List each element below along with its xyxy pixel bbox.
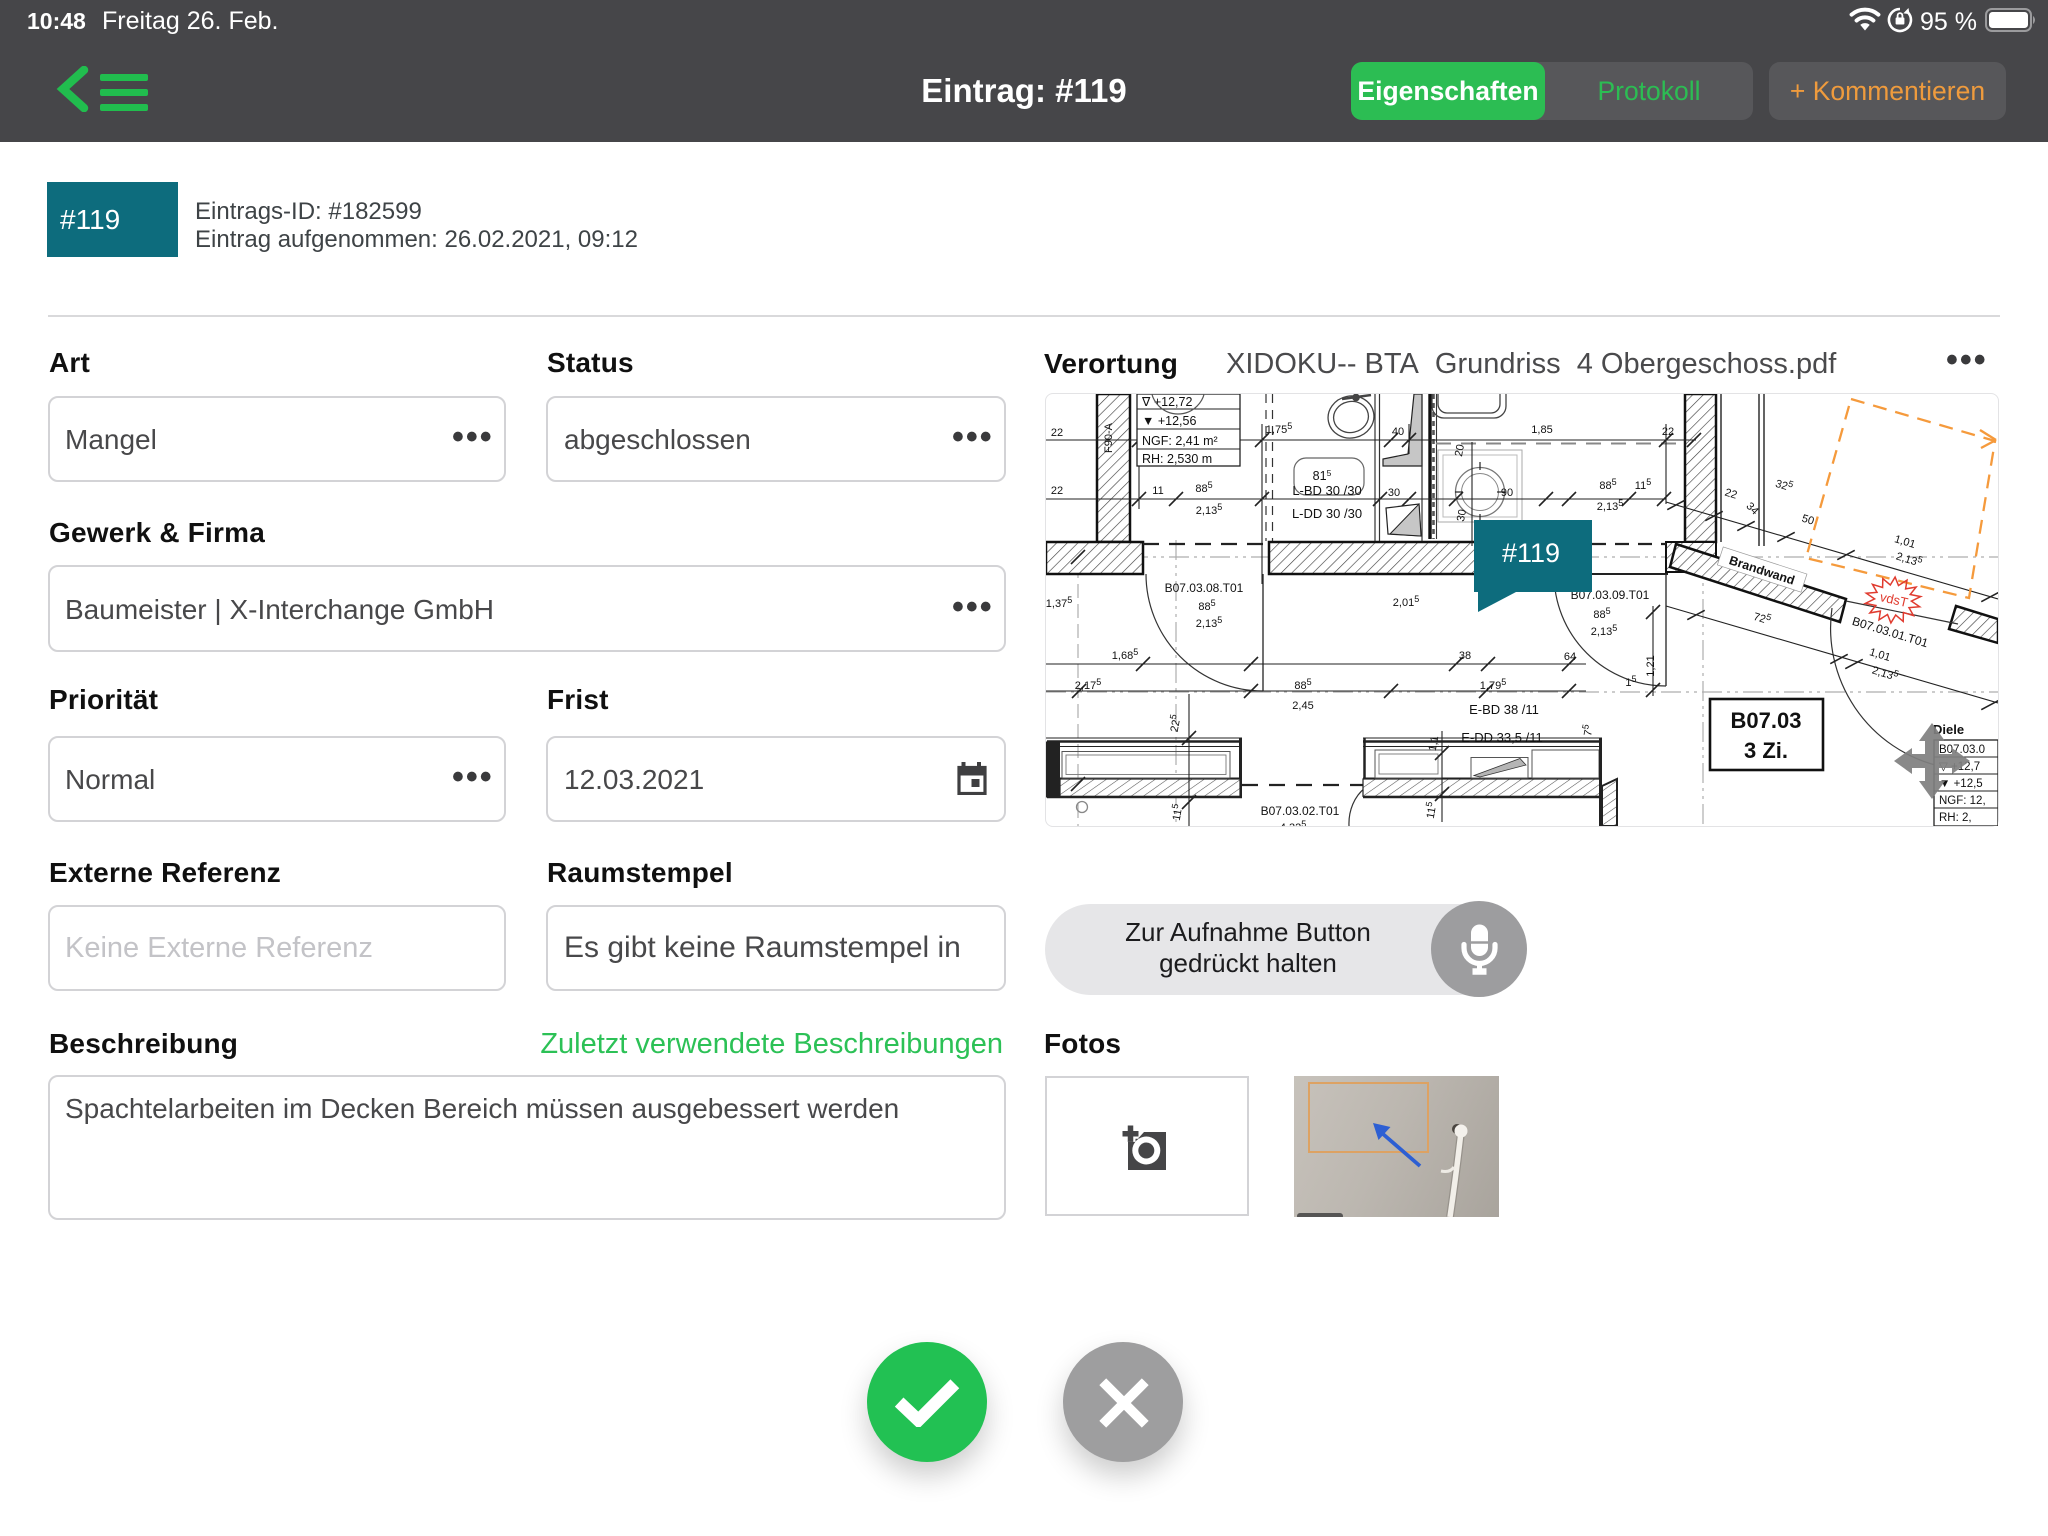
svg-text:11: 11 bbox=[1152, 485, 1163, 497]
svg-text:115: 115 bbox=[1168, 803, 1186, 822]
svg-text:1,375: 1,375 bbox=[1046, 595, 1072, 610]
svg-text:E-BD 38 /11: E-BD 38 /11 bbox=[1469, 702, 1539, 717]
svg-text:B07.03.08.T01: B07.03.08.T01 bbox=[1165, 581, 1244, 595]
svg-text:885: 885 bbox=[1198, 598, 1215, 613]
svg-text:NGF: 2,41 m²: NGF: 2,41 m² bbox=[1142, 434, 1218, 448]
svg-text:#119: #119 bbox=[1502, 538, 1560, 568]
svg-text:▼ +12,56: ▼ +12,56 bbox=[1142, 414, 1196, 428]
svg-text:3 Zi.: 3 Zi. bbox=[1744, 738, 1788, 763]
svg-text:2,135: 2,135 bbox=[1196, 615, 1222, 630]
svg-text:RH: 2,530 m: RH: 2,530 m bbox=[1142, 452, 1212, 466]
svg-text:64: 64 bbox=[1564, 651, 1576, 663]
svg-text:815: 815 bbox=[1313, 468, 1332, 483]
svg-text:115: 115 bbox=[1422, 801, 1440, 820]
svg-text:RH: 2,: RH: 2, bbox=[1939, 812, 1972, 824]
svg-text:34: 34 bbox=[1744, 500, 1761, 517]
svg-text:50: 50 bbox=[1800, 513, 1815, 528]
svg-text:2,135: 2,135 bbox=[1591, 623, 1617, 638]
svg-text:885: 885 bbox=[1593, 606, 1610, 621]
svg-text:2,135: 2,135 bbox=[1894, 548, 1924, 570]
svg-text:2,135: 2,135 bbox=[1196, 502, 1222, 517]
svg-text:F90-A: F90-A bbox=[1103, 422, 1115, 453]
svg-text:4,325: 4,325 bbox=[1280, 819, 1306, 826]
svg-text:NGF: 12,: NGF: 12, bbox=[1939, 795, 1986, 807]
svg-text:B07.03.02.T01: B07.03.02.T01 bbox=[1261, 804, 1340, 818]
svg-text:1,1: 1,1 bbox=[1427, 735, 1441, 752]
svg-text:L-DD 30 /30: L-DD 30 /30 bbox=[1292, 506, 1362, 521]
svg-text:▼ +12,5: ▼ +12,5 bbox=[1939, 778, 1983, 790]
svg-text:30: 30 bbox=[1388, 487, 1400, 499]
svg-text:1,755: 1,755 bbox=[1266, 421, 1292, 436]
svg-text:115: 115 bbox=[1635, 477, 1651, 492]
svg-text:75: 75 bbox=[1579, 723, 1596, 737]
svg-text:1,01: 1,01 bbox=[1893, 533, 1917, 551]
svg-text:L-BD 30 /30: L-BD 30 /30 bbox=[1292, 483, 1361, 498]
svg-text:E-DD 33,5 /11: E-DD 33,5 /11 bbox=[1461, 730, 1542, 745]
svg-text:90: 90 bbox=[1501, 487, 1513, 499]
svg-text:1,795: 1,795 bbox=[1480, 677, 1506, 692]
svg-text:vdsT: vdsT bbox=[1879, 589, 1910, 610]
svg-text:2,135: 2,135 bbox=[1870, 662, 1900, 684]
svg-text:B07.03.01.T01: B07.03.01.T01 bbox=[1850, 614, 1930, 651]
svg-text:2,45: 2,45 bbox=[1292, 700, 1313, 712]
svg-text:∇ +12,72: ∇ +12,72 bbox=[1141, 395, 1192, 409]
svg-text:15: 15 bbox=[1625, 674, 1636, 689]
svg-text:38: 38 bbox=[1459, 650, 1471, 662]
svg-text:2,015: 2,015 bbox=[1393, 594, 1419, 609]
svg-text:2,175: 2,175 bbox=[1075, 677, 1101, 692]
svg-text:885: 885 bbox=[1195, 480, 1212, 495]
svg-text:2,135: 2,135 bbox=[1597, 498, 1623, 513]
svg-text:22: 22 bbox=[1051, 427, 1063, 439]
svg-text:325: 325 bbox=[1774, 475, 1795, 494]
svg-text:725: 725 bbox=[1752, 608, 1773, 627]
svg-text:885: 885 bbox=[1599, 477, 1616, 492]
svg-text:20: 20 bbox=[1453, 443, 1467, 457]
svg-text:885: 885 bbox=[1294, 677, 1311, 692]
svg-text:30: 30 bbox=[1455, 508, 1469, 522]
svg-text:1,85: 1,85 bbox=[1531, 424, 1552, 436]
svg-text:225: 225 bbox=[1166, 713, 1184, 733]
svg-text:22: 22 bbox=[1662, 426, 1674, 438]
svg-text:B07.03: B07.03 bbox=[1731, 708, 1802, 733]
svg-text:1,685: 1,685 bbox=[1112, 647, 1138, 662]
svg-text:22: 22 bbox=[1051, 485, 1063, 497]
svg-text:1,21: 1,21 bbox=[1645, 655, 1657, 676]
svg-text:22: 22 bbox=[1723, 487, 1738, 502]
svg-text:1,01: 1,01 bbox=[1868, 646, 1892, 664]
svg-text:40: 40 bbox=[1392, 426, 1404, 438]
